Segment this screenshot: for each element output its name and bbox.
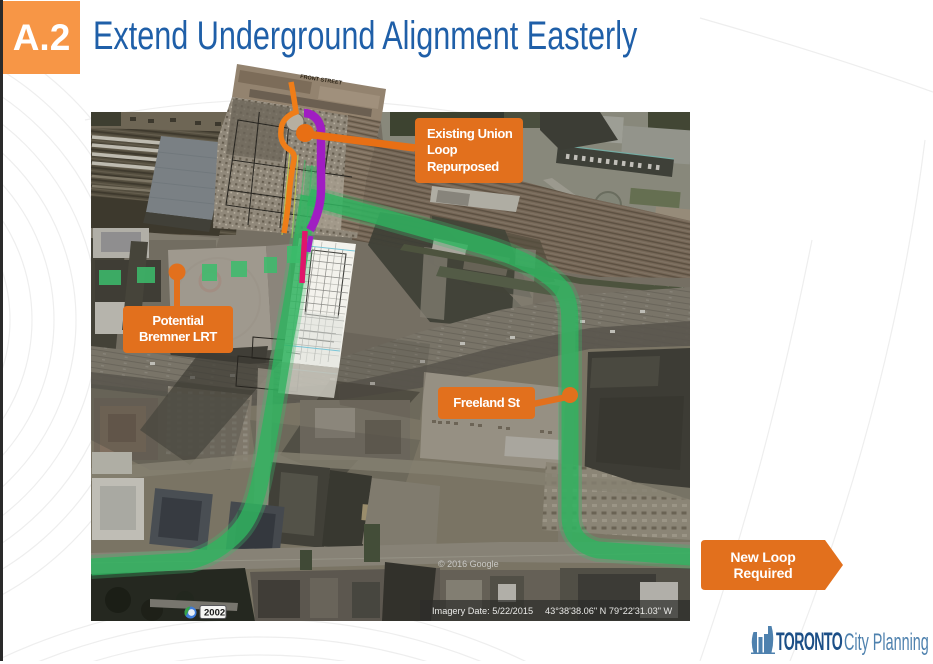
svg-text:Imagery Date: 5/22/2015: Imagery Date: 5/22/2015 bbox=[432, 606, 533, 616]
svg-text:City Planning: City Planning bbox=[844, 629, 929, 656]
svg-text:© 2016 Google: © 2016 Google bbox=[438, 559, 499, 569]
svg-text:43°38'38.06" N 79°22'31.03": 43°38'38.06" N 79°22'31.03" W bbox=[545, 606, 673, 616]
svg-text:TORONTO: TORONTO bbox=[776, 629, 842, 656]
svg-text:2002: 2002 bbox=[204, 608, 225, 619]
